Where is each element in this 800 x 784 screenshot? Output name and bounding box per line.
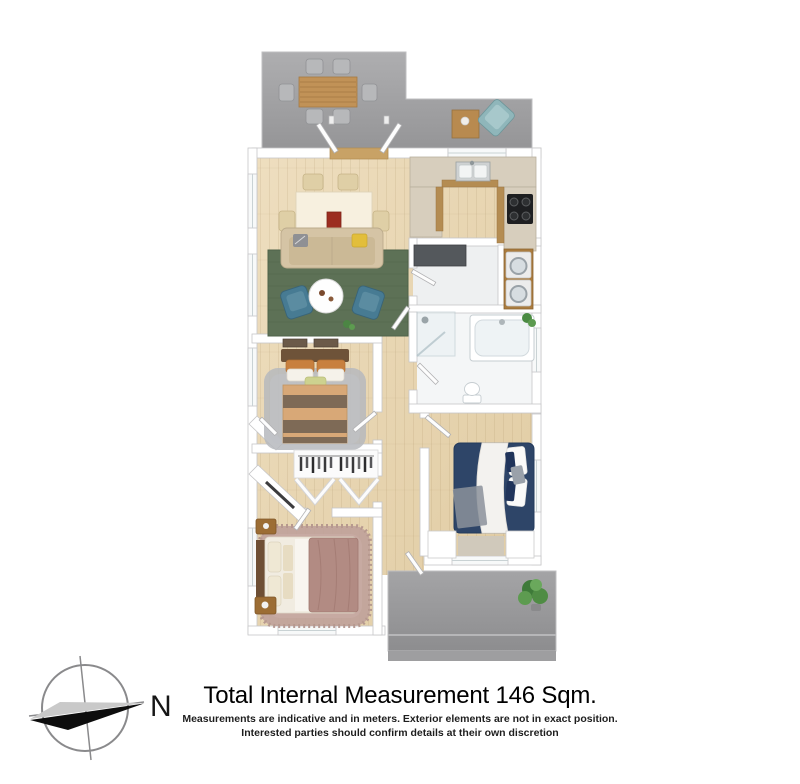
sofa	[281, 228, 383, 268]
wall-art	[283, 339, 307, 347]
washer-dryer-cabinet	[504, 249, 533, 309]
coffee-table	[309, 279, 343, 313]
nightstand	[256, 519, 276, 534]
gray-pillow	[293, 234, 308, 247]
shower	[417, 312, 455, 356]
kitchen-sink	[456, 161, 490, 181]
master-bedroom	[255, 519, 370, 626]
yellow-pillow	[352, 234, 367, 247]
bedroom3-rug	[458, 536, 504, 556]
outdoor-dining-table	[299, 77, 357, 107]
rear-patio	[388, 571, 556, 661]
bedroom3-bed	[453, 443, 534, 533]
nightstand	[255, 597, 276, 614]
deck-side-table	[452, 110, 479, 138]
upper-deck	[262, 52, 532, 157]
built-in-robe	[428, 531, 456, 558]
cooktop	[507, 194, 533, 224]
laundry-bench	[414, 245, 466, 266]
disclaimer-line-1: Measurements are indicative and in meter…	[0, 713, 800, 727]
toilet	[463, 383, 481, 404]
disclaimer-line-2: Interested parties should confirm detail…	[0, 727, 800, 741]
built-in-robe	[506, 531, 534, 558]
total-measurement-title: Total Internal Measurement 146 Sqm.	[0, 682, 800, 710]
wall-art	[314, 339, 338, 347]
floorplan-page: N Total Internal Measurement 146 Sqm. Me…	[0, 0, 800, 784]
footer: Total Internal Measurement 146 Sqm. Meas…	[0, 682, 800, 740]
